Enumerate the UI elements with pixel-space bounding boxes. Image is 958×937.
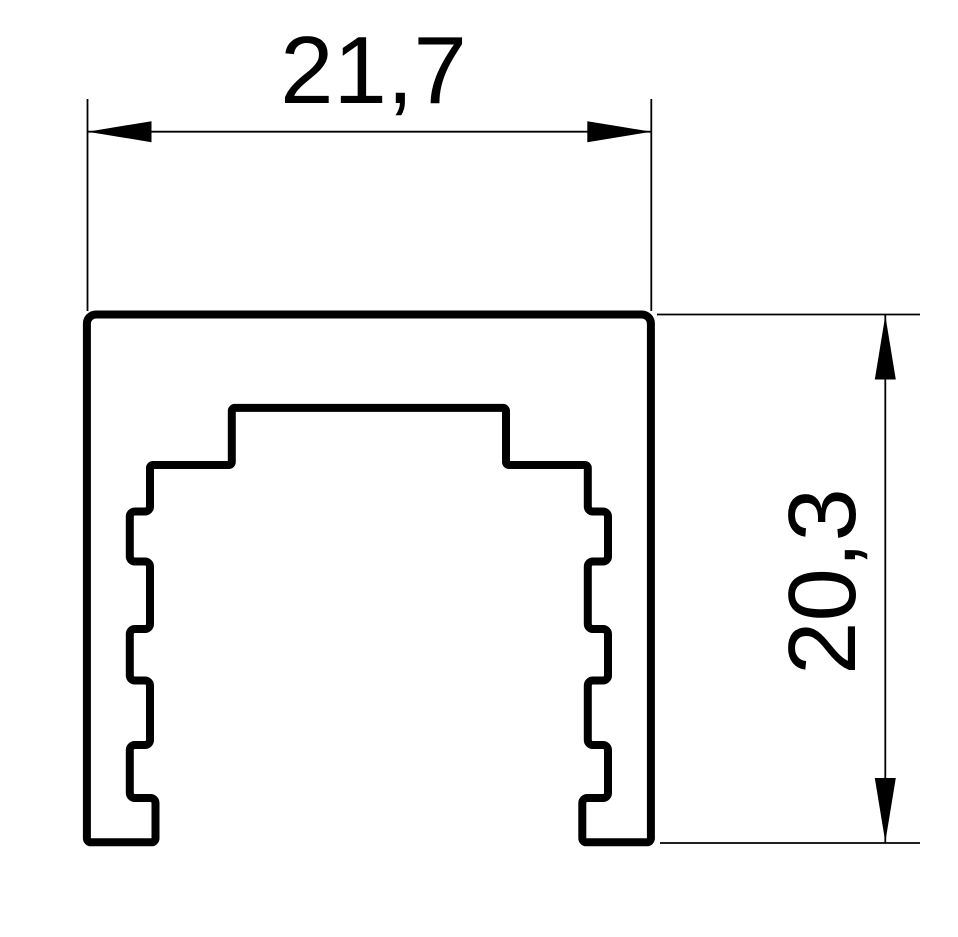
svg-text:20,3: 20,3 <box>769 488 876 675</box>
svg-text:21,7: 21,7 <box>280 17 467 124</box>
